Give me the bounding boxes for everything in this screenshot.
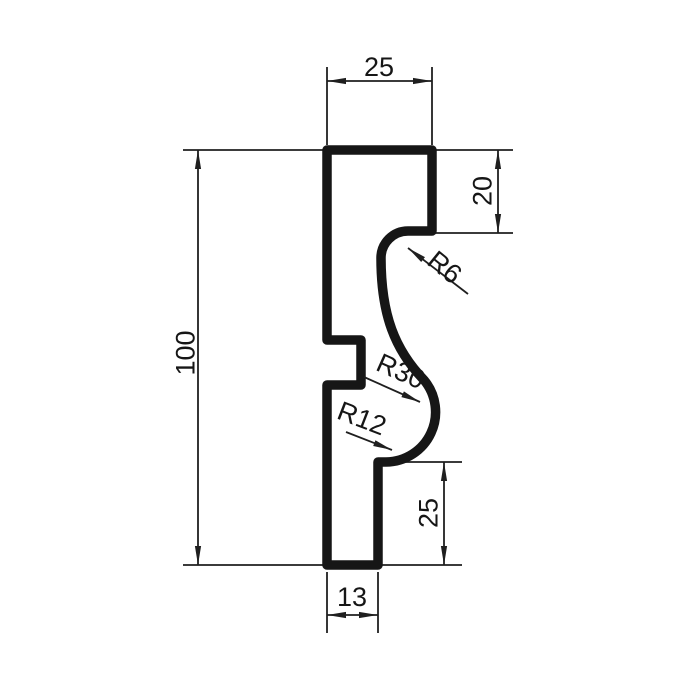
molding-profile-drawing: 25 20 100 25 13 R6 R30 R12 [0, 0, 686, 686]
dim-label-lower-right-height: 25 [413, 498, 443, 528]
dim-label-bottom-width: 13 [337, 582, 367, 612]
dim-label-overall-height: 100 [170, 330, 200, 375]
radius-label-r6: R6 [422, 245, 468, 290]
dim-label-top-width: 25 [364, 52, 394, 82]
technical-drawing-canvas: 25 20 100 25 13 R6 R30 R12 [0, 0, 686, 686]
dim-label-upper-right-height: 20 [467, 176, 497, 206]
